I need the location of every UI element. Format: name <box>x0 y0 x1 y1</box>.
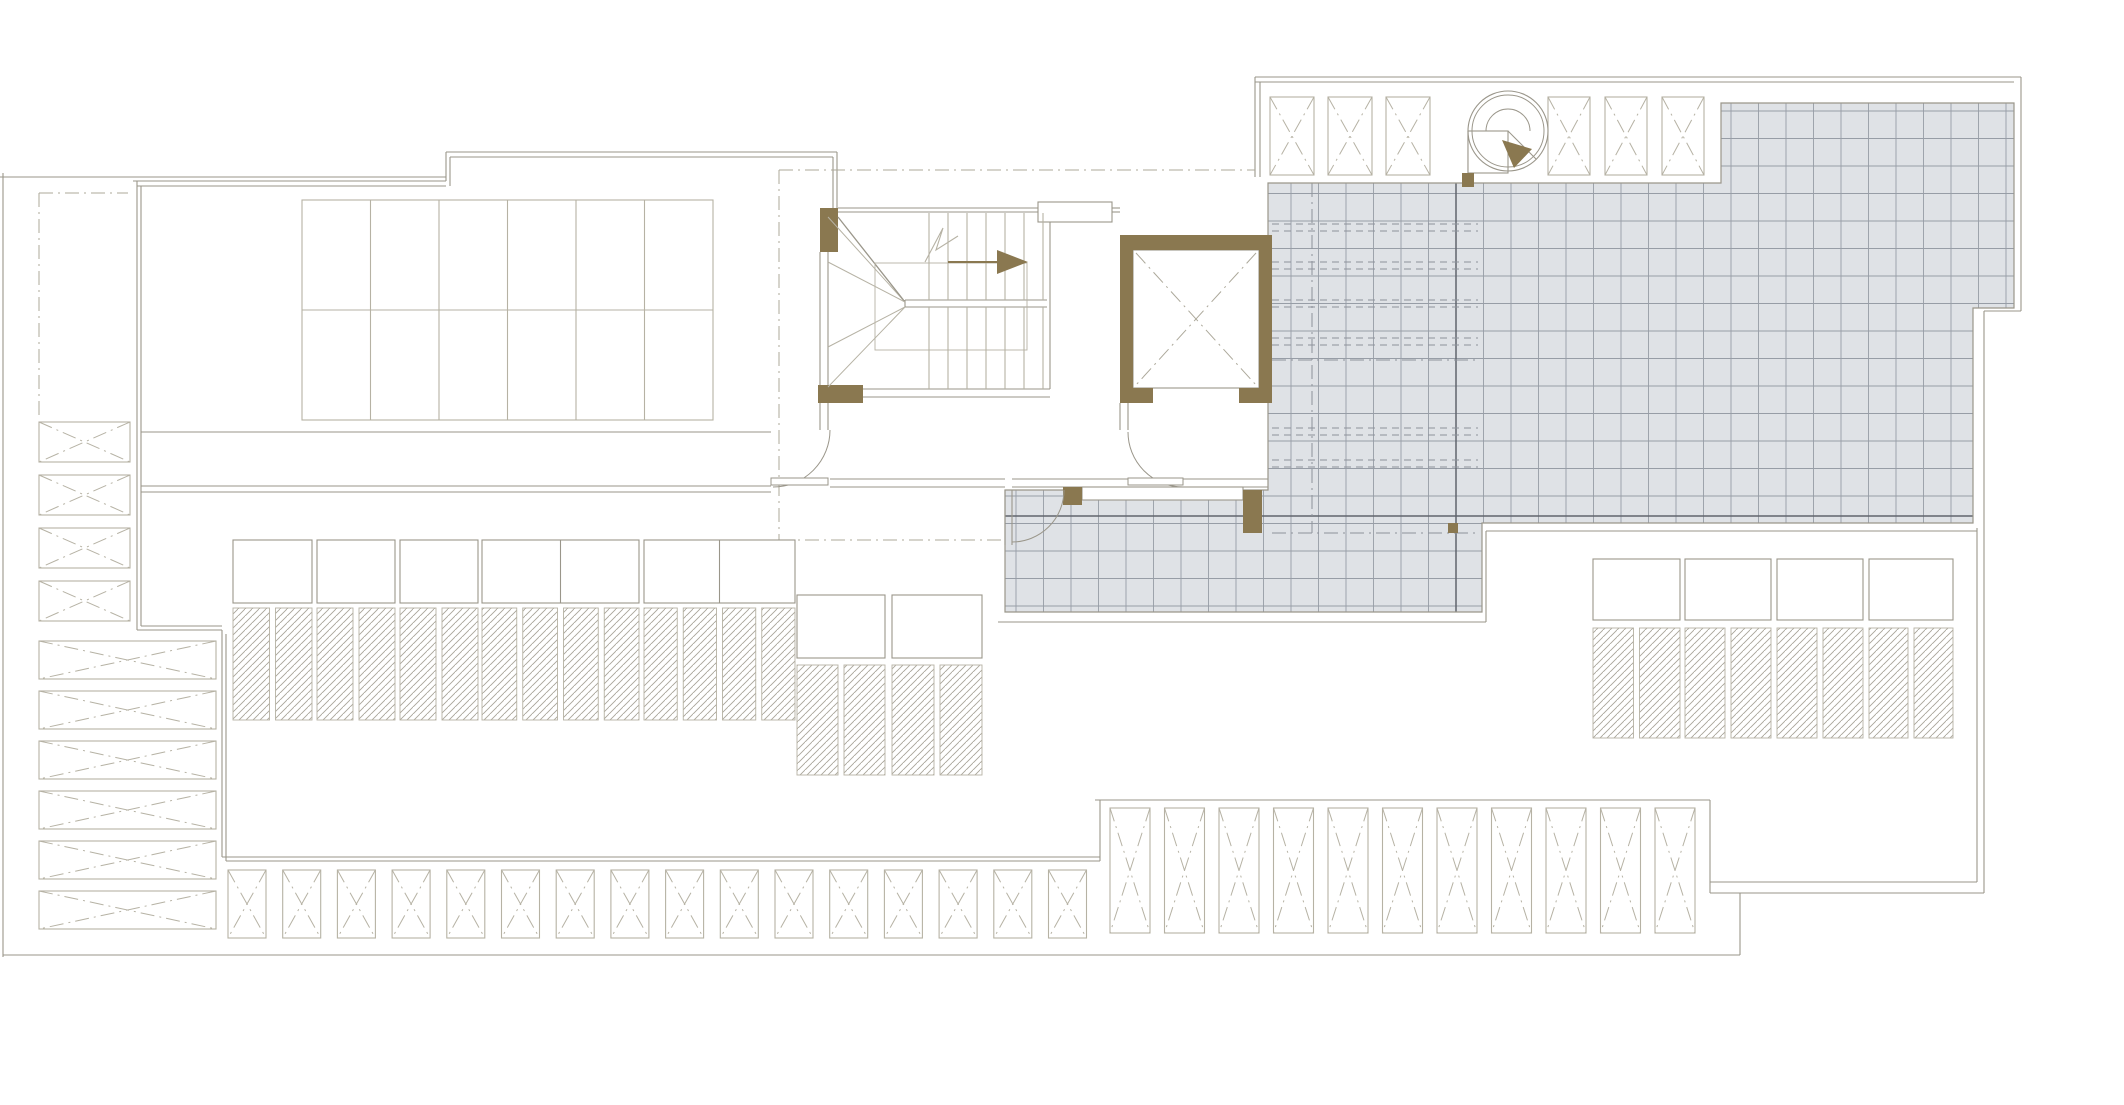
floor-plan-page <box>0 0 2124 1105</box>
floor-plan-drawing <box>0 0 2124 1105</box>
elevator-shaft <box>1133 250 1259 388</box>
skylights-left <box>233 540 795 720</box>
